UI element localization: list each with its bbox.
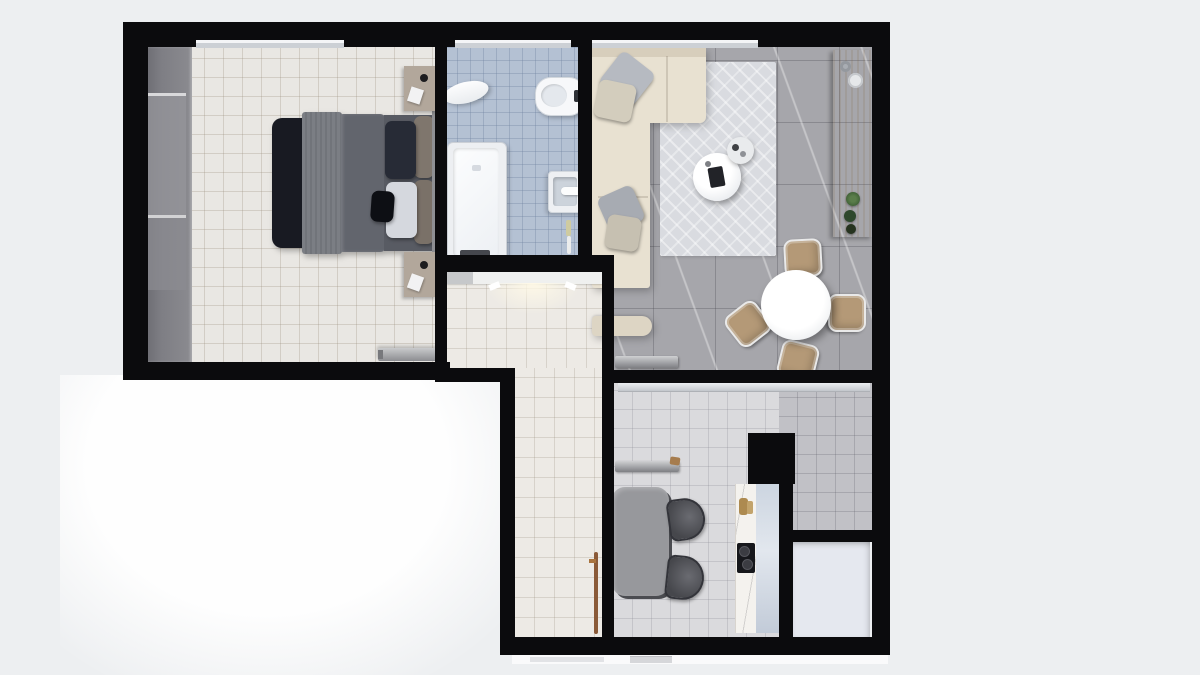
double-bed xyxy=(272,110,440,256)
cooktop xyxy=(737,543,755,573)
bathtub-drain-icon xyxy=(472,165,481,171)
gadget-icon xyxy=(420,261,428,269)
nightstand-top xyxy=(404,66,437,111)
bedroom-bench xyxy=(378,348,438,361)
wall-bedroom-right xyxy=(435,22,447,382)
dining-table xyxy=(761,270,831,340)
gadget-icon xyxy=(420,74,428,82)
wardrobe-panel xyxy=(148,95,186,215)
bedroom-window xyxy=(196,40,344,48)
coffee-table-tray-icon xyxy=(707,166,725,188)
wall-living-kitchen xyxy=(614,370,872,383)
wall-kitchen-column xyxy=(748,433,795,484)
wall-left xyxy=(123,22,148,380)
notepad-icon xyxy=(407,86,424,104)
decor-dot-icon xyxy=(740,151,746,157)
wall-hallway-right xyxy=(602,262,614,637)
bench-endcap xyxy=(378,350,383,359)
sofa-seam xyxy=(666,56,668,122)
console-sideboard xyxy=(833,50,873,237)
bed-striped-runner xyxy=(302,112,342,254)
decor-plate-icon xyxy=(848,73,863,88)
notepad-icon xyxy=(407,273,424,292)
wall-hallway-left xyxy=(500,368,515,655)
wall-kitchen-vertical xyxy=(779,484,793,637)
plant-icon xyxy=(846,224,856,234)
black-cushion xyxy=(370,190,395,223)
bed-duvet xyxy=(341,114,386,252)
bed-foot-throw xyxy=(272,118,306,248)
broom-handle-icon xyxy=(589,559,596,563)
plant-icon xyxy=(844,210,856,222)
entry-door-dark-segment xyxy=(447,272,473,284)
wall-bathroom-right xyxy=(578,22,592,272)
nightstand-bottom xyxy=(404,252,437,297)
wardrobe-panel xyxy=(148,218,186,290)
glass-partition-track xyxy=(618,383,870,392)
sofa-armrest xyxy=(592,316,652,336)
burner-icon xyxy=(739,546,750,557)
toilet-brush-handle xyxy=(567,236,571,254)
floor-plan xyxy=(0,0,1200,675)
utility-room-floor xyxy=(793,542,870,637)
wardrobe-seam xyxy=(148,215,186,218)
wall-bathroom-bottom xyxy=(435,255,614,272)
living-radiator xyxy=(615,356,678,368)
threshold-marker xyxy=(530,657,604,662)
sofa-pillow-taupe xyxy=(604,214,643,253)
wardrobe-seam xyxy=(148,93,186,96)
counter-glass-panel xyxy=(756,484,779,633)
bathroom-window xyxy=(455,40,571,48)
wardrobe xyxy=(148,47,192,362)
living-window xyxy=(592,40,758,48)
coffee-table-dot-icon xyxy=(705,161,711,167)
hallway-floor-narrow xyxy=(515,368,602,637)
wall-right-outer xyxy=(872,22,890,655)
wall-bottom-outer xyxy=(500,637,890,655)
bolster-pillow xyxy=(414,180,434,244)
broom-icon xyxy=(594,552,598,634)
wall-utility-top xyxy=(779,530,872,542)
burner-icon xyxy=(742,559,753,570)
backdrop-highlight xyxy=(60,375,520,675)
wall-bedroom-bottom xyxy=(123,362,450,380)
wall-hallway-connector xyxy=(435,368,515,382)
bolster-pillow xyxy=(414,116,434,178)
plant-icon xyxy=(846,192,860,206)
side-table xyxy=(727,137,754,164)
threshold-marker xyxy=(630,656,672,663)
sofa-back-edge xyxy=(592,48,706,57)
toilet-bowl xyxy=(541,84,567,107)
bottle-icon xyxy=(747,501,753,514)
studio-desk xyxy=(612,487,669,596)
toilet-brush-icon xyxy=(566,220,571,236)
navy-pillow xyxy=(385,121,416,179)
dining-chair-right xyxy=(828,294,866,332)
sofa-pillow-cream xyxy=(592,78,637,123)
bathtub xyxy=(447,142,507,265)
decor-bowl-icon xyxy=(840,61,851,72)
decor-dot-icon xyxy=(732,144,739,151)
sectional-sofa xyxy=(592,48,706,288)
shelf-wood-handle-icon xyxy=(669,456,680,465)
